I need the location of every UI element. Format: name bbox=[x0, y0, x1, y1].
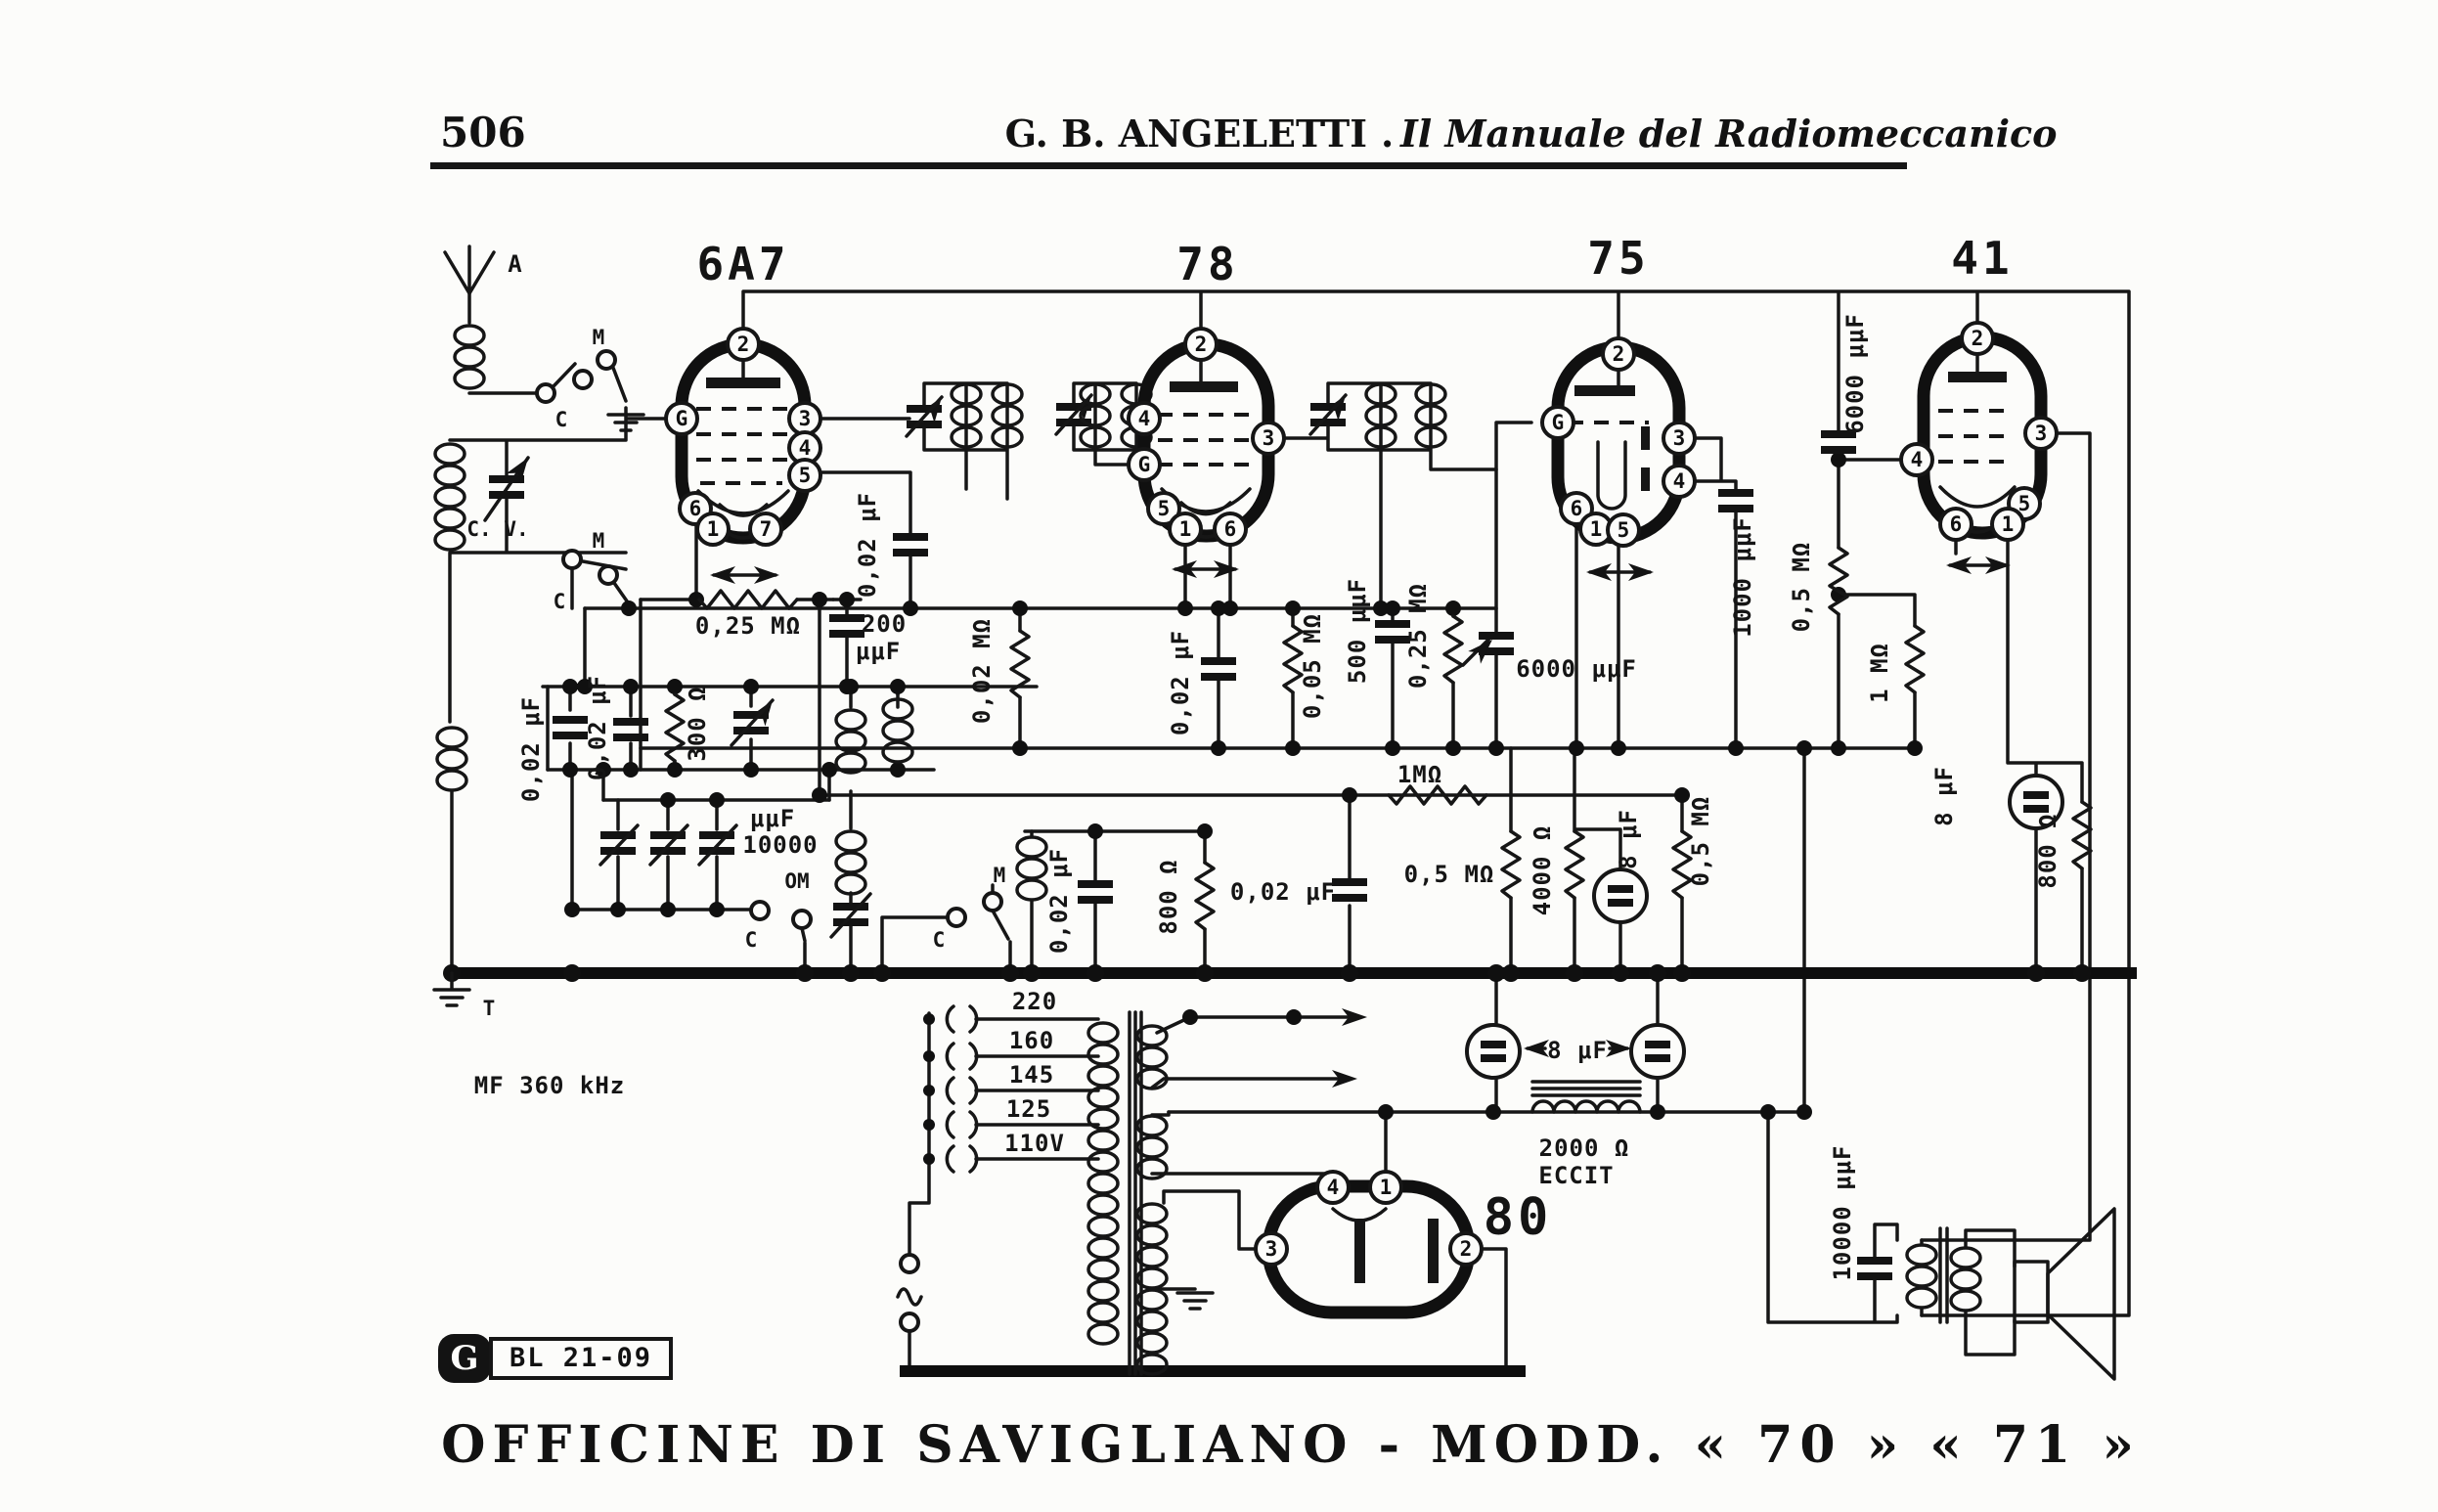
capacitor-200-num: 200 bbox=[862, 610, 907, 638]
resistor-1M-horizontal-value: 1MΩ bbox=[1397, 761, 1442, 788]
pin: 4 bbox=[1327, 1176, 1340, 1199]
tube-41: 41 2 3 4 5 1 6 bbox=[1901, 232, 2057, 574]
pin: 2 bbox=[1195, 333, 1208, 356]
mains-tap-labels: 220 160 145 125 110V bbox=[1004, 988, 1065, 1157]
capacitor-500-value: 500 μμF bbox=[1344, 578, 1371, 684]
ground-t-label: T bbox=[483, 997, 496, 1020]
capacitor-1000-value: 1000 μμF bbox=[1729, 516, 1756, 638]
resistor-025M bbox=[1444, 616, 1462, 683]
capacitor-002c-value: 0,02 μF bbox=[854, 492, 881, 598]
potentiometer-025-value: 0,25 MΩ bbox=[695, 612, 801, 640]
pin: 5 bbox=[799, 464, 812, 487]
capacitor-002e bbox=[1332, 878, 1367, 902]
output-transformer bbox=[1907, 1228, 1980, 1322]
pin: 3 bbox=[1265, 1237, 1278, 1261]
resistor-4000 bbox=[1566, 831, 1583, 898]
capacitor-002a bbox=[553, 716, 588, 739]
tube-41-label: 41 bbox=[1951, 232, 2013, 285]
padder-trimmers: μμF 10000 bbox=[600, 805, 819, 865]
capacitor-002d bbox=[1201, 657, 1236, 681]
resistor-800a bbox=[1196, 863, 1214, 929]
capacitor-10000-output-value: 10000 μμF bbox=[1829, 1144, 1856, 1280]
cv-label: C. V. bbox=[466, 517, 528, 541]
tube-75: 75 2 G 3 4 6 1 5 bbox=[1542, 232, 1695, 581]
pin: 3 bbox=[1673, 426, 1686, 450]
resistor-1M-vertical-value: 1 MΩ bbox=[1866, 643, 1893, 703]
resistor-05Mb-value: 0,5 MΩ bbox=[1404, 861, 1495, 888]
switch3-m-label: M bbox=[994, 864, 1006, 887]
pin: 4 bbox=[1673, 469, 1686, 493]
antenna-symbol: A bbox=[445, 246, 523, 293]
capacitor-200-unit: μμF bbox=[856, 638, 901, 665]
pin: 6 bbox=[1571, 497, 1583, 520]
pin: 2 bbox=[1613, 342, 1625, 366]
scanned-schematic-page: 506 G. B. ANGELETTI . Il Manuale del Rad… bbox=[0, 0, 2438, 1512]
page-header: 506 G. B. ANGELETTI . Il Manuale del Rad… bbox=[430, 109, 2058, 169]
filter-block: 8 μF 2000 Ω ECCIT bbox=[1467, 1025, 1684, 1189]
tube-78: 78 2 4 G 3 5 1 6 bbox=[1129, 238, 1284, 578]
pin: 2 bbox=[1972, 327, 1984, 350]
resistor-05Ma-value: 0,5 MΩ bbox=[1788, 542, 1815, 633]
capacitor-002a-value: 0,02 μF bbox=[517, 696, 545, 802]
footer-model-title: OFFICINE DI SAVIGLIANO - MODD. « 70 » « … bbox=[441, 1415, 2141, 1475]
capacitor-002e-value: 0,02 μF bbox=[1230, 878, 1336, 906]
tap-220: 220 bbox=[1012, 988, 1057, 1015]
capacitor-200 bbox=[829, 614, 864, 638]
capacitor-002f bbox=[1078, 880, 1113, 904]
switch2-c-label: C bbox=[554, 590, 566, 613]
pin: G bbox=[1552, 411, 1565, 434]
pin: 2 bbox=[737, 333, 750, 356]
capacitor-10000-output bbox=[1857, 1257, 1892, 1280]
schematic-canvas: 506 G. B. ANGELETTI . Il Manuale del Rad… bbox=[0, 0, 2438, 1512]
pin: 3 bbox=[1263, 426, 1275, 450]
pin: 6 bbox=[1950, 512, 1963, 536]
pin: 1 bbox=[1179, 517, 1192, 541]
capacitor-002b bbox=[613, 718, 648, 741]
resistor-300-value: 300 Ω bbox=[684, 686, 711, 761]
tube-80-label: 80 bbox=[1484, 1188, 1553, 1247]
capacitor-8b-value: 8 μF bbox=[1930, 766, 1958, 826]
field-coil-eccit: ECCIT bbox=[1538, 1162, 1614, 1189]
pin: 3 bbox=[799, 407, 812, 430]
capacitor-002b-value: 0,02 μF bbox=[584, 675, 611, 780]
switch3-c-label: C bbox=[933, 928, 946, 952]
tube-6A7: 6A7 2 G 3 4 5 6 1 7 bbox=[666, 238, 820, 584]
capacitor-1000 bbox=[1718, 489, 1753, 512]
header-separator: . bbox=[1381, 111, 1394, 156]
antenna-label: A bbox=[508, 250, 522, 278]
chassis-ground: T bbox=[434, 973, 495, 1020]
speaker bbox=[2015, 1209, 2114, 1379]
padder-unit: μμF bbox=[750, 805, 795, 832]
pin: 4 bbox=[1911, 448, 1924, 471]
bl-stamp: G BL 21-09 bbox=[438, 1334, 671, 1383]
junction-dots bbox=[443, 452, 2091, 1165]
band-switch-1: M C bbox=[537, 326, 643, 431]
tap-160: 160 bbox=[1009, 1027, 1054, 1054]
pin: 1 bbox=[2002, 512, 2015, 536]
switch1-c-label: C bbox=[555, 408, 568, 431]
pin: 1 bbox=[1380, 1176, 1393, 1199]
resistor-800b-value: 800 Ω bbox=[2034, 813, 2061, 888]
tap-125: 125 bbox=[1006, 1095, 1051, 1123]
resistor-4000-value: 4000 Ω bbox=[1529, 825, 1556, 916]
if1-trimmer bbox=[907, 392, 949, 436]
switch4-om-label: OM bbox=[784, 869, 809, 893]
pin: 1 bbox=[1590, 517, 1603, 541]
if-frequency-note: MF 360 kHz bbox=[474, 1072, 626, 1099]
switch4-c-label: C bbox=[745, 928, 758, 952]
capacitor-8a bbox=[1594, 869, 1647, 922]
pin: 6 bbox=[689, 497, 702, 520]
pin: 6 bbox=[1224, 517, 1237, 541]
resistor-05Mc-value: 0,5 MΩ bbox=[1687, 796, 1714, 887]
oscillator-coupling-coil bbox=[437, 728, 466, 790]
pin: 2 bbox=[1460, 1237, 1473, 1261]
osc-coil-3 bbox=[836, 831, 865, 894]
resistor-05Ma bbox=[1830, 548, 1847, 614]
capacitor-002d-value: 0,02 μF bbox=[1167, 630, 1194, 735]
pin: 5 bbox=[1618, 518, 1630, 542]
pin: G bbox=[676, 407, 688, 430]
bias-coil bbox=[1017, 837, 1046, 900]
pin: 7 bbox=[760, 517, 773, 541]
band-switch-2: M C bbox=[554, 529, 617, 613]
tube-80: 80 4 1 3 2 bbox=[1256, 1172, 1552, 1312]
resistor-005M-value: 0,05 MΩ bbox=[1299, 613, 1326, 719]
padder-value: 10000 bbox=[742, 831, 818, 859]
resistor-002M-value: 0,02 MΩ bbox=[968, 618, 996, 724]
capacitor-6000b-value: 6000 μμF bbox=[1841, 313, 1869, 434]
potentiometer-025 bbox=[699, 591, 797, 608]
antenna-coil bbox=[455, 326, 484, 388]
resistor-025M-value: 0,25 MΩ bbox=[1404, 583, 1432, 689]
pin: 4 bbox=[799, 436, 812, 460]
osc-coil-1 bbox=[836, 710, 865, 773]
capacitor-6000a-value: 6000 μμF bbox=[1516, 655, 1637, 683]
capacitor-8ps-left bbox=[1467, 1025, 1520, 1078]
capacitor-8ps-right bbox=[1631, 1025, 1684, 1078]
capacitor-002f-value: 0,02 μF bbox=[1045, 848, 1073, 954]
pin: 1 bbox=[707, 517, 720, 541]
pin: 4 bbox=[1138, 407, 1151, 430]
field-coil-value: 2000 Ω bbox=[1539, 1134, 1630, 1162]
variable-capacitor-cv: C. V. bbox=[466, 453, 535, 541]
tuning-coil bbox=[435, 444, 465, 550]
band-switch-3: M C bbox=[933, 864, 1006, 952]
tap-110V: 110V bbox=[1004, 1130, 1065, 1157]
if3-trimmer bbox=[1310, 390, 1352, 434]
tube-78-label: 78 bbox=[1176, 238, 1238, 290]
tube-75-label: 75 bbox=[1587, 232, 1649, 285]
resistor-800a-value: 800 Ω bbox=[1155, 859, 1182, 934]
resistor-1M-vertical bbox=[1906, 626, 1924, 692]
resistor-05Mb bbox=[1502, 831, 1520, 898]
switch1-m-label: M bbox=[593, 326, 605, 349]
header-book-title: Il Manuale del Radiomeccanico bbox=[1399, 111, 2058, 156]
trimmer-antenna bbox=[731, 695, 779, 745]
tap-145: 145 bbox=[1009, 1061, 1054, 1089]
stamp-code: BL 21-09 bbox=[510, 1343, 652, 1373]
stamp-glyph: G bbox=[450, 1339, 478, 1378]
header-rule bbox=[430, 162, 1907, 169]
capacitor-8ps-value: 8 μF bbox=[1547, 1037, 1608, 1064]
band-switch-4: OM C bbox=[745, 869, 811, 952]
capacitor-8a-value: 8 μF bbox=[1615, 809, 1642, 869]
pin: 3 bbox=[2035, 422, 2048, 445]
page-number: 506 bbox=[440, 109, 526, 156]
hv-centertap-ground-icon bbox=[1177, 1293, 1213, 1309]
power-transformer bbox=[1088, 1012, 1167, 1374]
capacitor-002c bbox=[893, 533, 928, 556]
header-author: G. B. ANGELETTI bbox=[1005, 111, 1367, 156]
tube-6A7-label: 6A7 bbox=[696, 238, 789, 290]
switch2-m-label: M bbox=[593, 529, 605, 553]
resistor-300 bbox=[666, 694, 684, 761]
pin: 5 bbox=[1158, 497, 1171, 520]
pin: G bbox=[1138, 453, 1151, 476]
